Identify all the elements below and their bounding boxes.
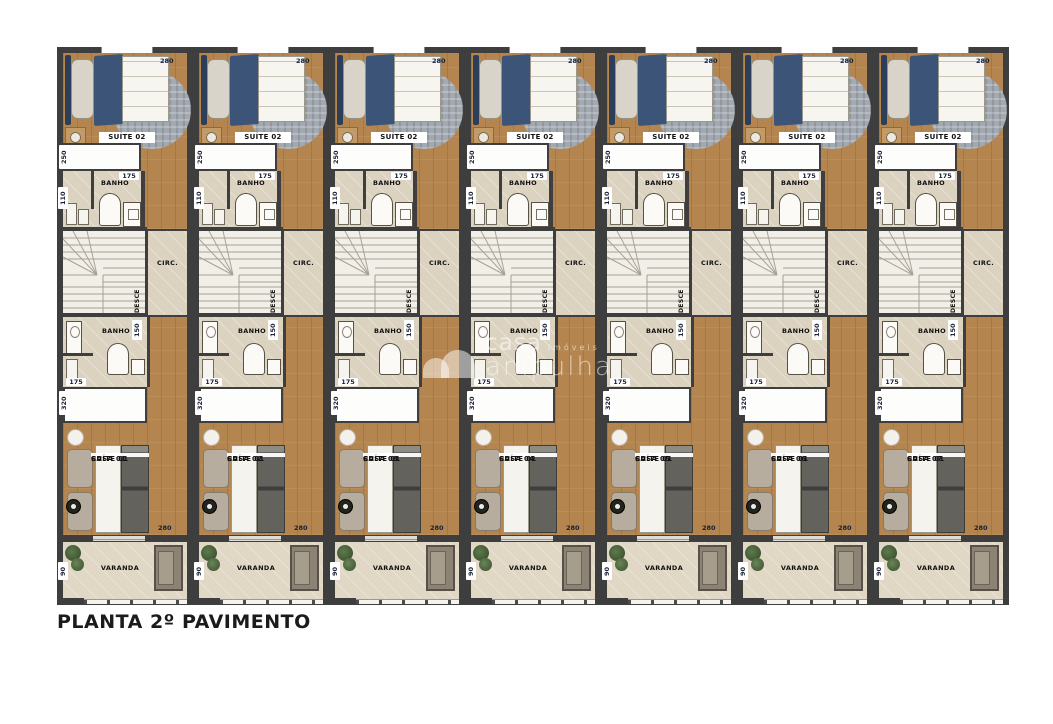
toilet bbox=[507, 193, 529, 226]
ottoman bbox=[203, 429, 220, 446]
interior-wall bbox=[419, 317, 422, 387]
bathroom1-fixture bbox=[350, 209, 361, 225]
interior-wall bbox=[277, 171, 281, 229]
dimension-lower-closet: 320 bbox=[331, 391, 341, 415]
page-title: PLANTA 2º PAVIMENTO bbox=[57, 611, 311, 633]
floor-lamp bbox=[882, 499, 897, 514]
varanda-label: VARANDA bbox=[91, 564, 149, 572]
varanda-railing bbox=[84, 599, 187, 604]
upper-closet bbox=[607, 143, 685, 171]
unit-room-label: CASA 04 SUÍTE 01 bbox=[499, 453, 557, 457]
dimension-suite1-width: 280 bbox=[293, 524, 309, 532]
vanity-sink bbox=[474, 321, 490, 355]
potted-plant bbox=[751, 558, 764, 571]
small-sink bbox=[675, 359, 689, 375]
dimension-bathroom2-depth: 150 bbox=[812, 320, 822, 340]
bed-mattress bbox=[802, 56, 849, 122]
ottoman bbox=[475, 429, 492, 446]
toilet bbox=[243, 343, 265, 375]
dimension-suite1-width: 280 bbox=[973, 524, 989, 532]
dimension-bathroom1-depth: 110 bbox=[874, 187, 884, 209]
bed-mattress bbox=[122, 56, 169, 122]
dimension-bathroom1-depth: 110 bbox=[330, 187, 340, 209]
dimension-upper-closet: 250 bbox=[875, 145, 885, 169]
toilet bbox=[643, 193, 665, 226]
dimension-varanda-depth: 90 bbox=[330, 562, 340, 580]
bathroom2-divider-wall bbox=[879, 353, 909, 356]
sink-counter bbox=[259, 202, 277, 227]
table-lamp bbox=[478, 132, 489, 143]
bathroom1-label: BANHO bbox=[635, 179, 683, 187]
lower-closet bbox=[199, 387, 283, 423]
dimension-bathroom2-width: 175 bbox=[746, 378, 766, 386]
sink-counter bbox=[531, 202, 549, 227]
dimension-bathroom2-width: 175 bbox=[202, 378, 222, 386]
bed-pillow bbox=[71, 59, 94, 119]
suite1-room-label: SUÍTE 01 bbox=[499, 455, 536, 464]
corner-wall bbox=[57, 598, 84, 605]
bed-mattress bbox=[938, 56, 985, 122]
dimension-suite2-width: 280 bbox=[159, 57, 175, 65]
townhouse-unit: SUÍTE 02 280 250 BANHO 175 110 bbox=[873, 47, 1009, 605]
stairs-down-label: DESCE bbox=[541, 273, 551, 313]
upper-closet bbox=[63, 143, 141, 171]
dimension-bathroom2-width: 175 bbox=[66, 378, 86, 386]
lower-closet bbox=[743, 387, 827, 423]
bathroom2-divider-wall bbox=[471, 353, 501, 356]
dimension-suite1-width: 280 bbox=[701, 524, 717, 532]
toilet bbox=[651, 343, 673, 375]
dimension-suite2-width: 280 bbox=[295, 57, 311, 65]
small-sink bbox=[539, 359, 553, 375]
townhouse-unit: SUÍTE 02 280 250 BANHO 175 110 bbox=[465, 47, 601, 605]
varanda-label: VARANDA bbox=[907, 564, 965, 572]
interior-wall bbox=[963, 317, 966, 387]
potted-plant bbox=[615, 558, 628, 571]
bed-pillow bbox=[611, 449, 637, 488]
bathroom1-divider-wall bbox=[907, 171, 910, 209]
varanda-sofa bbox=[290, 545, 319, 591]
circulation-floor bbox=[284, 231, 323, 315]
circulation-floor bbox=[556, 231, 595, 315]
corner-wall bbox=[193, 598, 220, 605]
potted-plant bbox=[71, 558, 84, 571]
sink-counter bbox=[803, 202, 821, 227]
bathroom1-divider-wall bbox=[227, 171, 230, 209]
bathroom1-fixture bbox=[486, 209, 497, 225]
varanda-sofa bbox=[154, 545, 183, 591]
dimension-suite2-width: 280 bbox=[703, 57, 719, 65]
interior-wall bbox=[957, 171, 961, 229]
potted-plant bbox=[207, 558, 220, 571]
dimension-upper-closet: 250 bbox=[331, 145, 341, 169]
upper-closet bbox=[199, 143, 277, 171]
bed-pillow bbox=[203, 449, 229, 488]
dimension-suite2-width: 280 bbox=[839, 57, 855, 65]
vanity-sink bbox=[202, 321, 218, 355]
bed-blue-blanket bbox=[774, 54, 803, 126]
suite2-room-label: SUÍTE 02 bbox=[507, 132, 563, 143]
small-sink bbox=[267, 359, 281, 375]
varanda-railing bbox=[220, 599, 323, 604]
stairs-down-label: DESCE bbox=[269, 273, 279, 313]
bathroom1-fixture bbox=[894, 209, 905, 225]
small-sink bbox=[811, 359, 825, 375]
unit-room-label: CASA 01 SUÍTE 01 bbox=[91, 453, 149, 457]
dimension-bathroom2-depth: 150 bbox=[676, 320, 686, 340]
corner-wall bbox=[737, 598, 764, 605]
interior-wall bbox=[283, 317, 286, 387]
dimension-suite1-width: 280 bbox=[157, 524, 173, 532]
bed-pillow bbox=[343, 59, 366, 119]
toilet bbox=[915, 193, 937, 226]
dimension-suite1-width: 280 bbox=[837, 524, 853, 532]
circulation-floor bbox=[964, 231, 1003, 315]
ottoman bbox=[67, 429, 84, 446]
table-lamp bbox=[206, 132, 217, 143]
unit-room-label: CASA 02 SUÍTE 01 bbox=[227, 453, 285, 457]
suite2-room-label: SUÍTE 02 bbox=[371, 132, 427, 143]
vanity-sink bbox=[338, 321, 354, 355]
small-sink bbox=[947, 359, 961, 375]
table-lamp bbox=[70, 132, 81, 143]
interior-wall bbox=[685, 171, 689, 229]
toilet bbox=[99, 193, 121, 226]
bathroom1-label: BANHO bbox=[363, 179, 411, 187]
circulation-label: CIRC. bbox=[148, 259, 187, 267]
sliding-door bbox=[773, 536, 825, 541]
potted-plant bbox=[479, 558, 492, 571]
townhouse-unit: SUÍTE 02 280 250 BANHO 175 110 bbox=[57, 47, 193, 605]
dimension-varanda-depth: 90 bbox=[194, 562, 204, 580]
varanda-sofa bbox=[970, 545, 999, 591]
table-lamp bbox=[614, 132, 625, 143]
dimension-lower-closet: 320 bbox=[739, 391, 749, 415]
townhouse-unit: SUÍTE 02 280 250 BANHO 175 110 bbox=[329, 47, 465, 605]
corner-wall bbox=[601, 598, 628, 605]
dimension-bathroom2-width: 175 bbox=[610, 378, 630, 386]
suite2-room-label: SUÍTE 02 bbox=[99, 132, 155, 143]
dimension-lower-closet: 320 bbox=[603, 391, 613, 415]
small-sink bbox=[403, 359, 417, 375]
stairs-down-label: DESCE bbox=[133, 273, 143, 313]
unit-room-label: CASA 07 SUÍTE 01 bbox=[907, 453, 965, 457]
varanda-label: VARANDA bbox=[771, 564, 829, 572]
varanda-sofa bbox=[834, 545, 863, 591]
dimension-bathroom1-width: 175 bbox=[935, 172, 955, 180]
bathroom1-divider-wall bbox=[91, 171, 94, 209]
townhouse-unit: SUÍTE 02 280 250 BANHO 175 110 bbox=[193, 47, 329, 605]
sliding-door bbox=[229, 536, 281, 541]
ottoman bbox=[883, 429, 900, 446]
dimension-suite2-width: 280 bbox=[975, 57, 991, 65]
sink-counter bbox=[939, 202, 957, 227]
dimension-bathroom1-width: 175 bbox=[799, 172, 819, 180]
ottoman bbox=[339, 429, 356, 446]
bed-pillow bbox=[339, 449, 365, 488]
dimension-lower-closet: 320 bbox=[195, 391, 205, 415]
dimension-varanda-depth: 90 bbox=[58, 562, 68, 580]
sliding-door bbox=[365, 536, 417, 541]
toilet bbox=[379, 343, 401, 375]
upper-closet bbox=[471, 143, 549, 171]
bed-pillow bbox=[479, 59, 502, 119]
sink-counter bbox=[667, 202, 685, 227]
bed-mattress bbox=[258, 56, 305, 122]
potted-plant bbox=[343, 558, 356, 571]
dimension-upper-closet: 250 bbox=[603, 145, 613, 169]
bathroom1-divider-wall bbox=[499, 171, 502, 209]
suite2-room-label: SUÍTE 02 bbox=[779, 132, 835, 143]
stairs-down-label: DESCE bbox=[949, 273, 959, 313]
suite1-room-label: SUÍTE 01 bbox=[91, 455, 128, 464]
interior-wall bbox=[827, 317, 830, 387]
unit-room-label: CASA 03 SUÍTE 01 bbox=[363, 453, 421, 457]
suite1-room-label: SUÍTE 01 bbox=[635, 455, 672, 464]
varanda-sofa bbox=[426, 545, 455, 591]
lower-closet bbox=[471, 387, 555, 423]
ottoman bbox=[747, 429, 764, 446]
vanity-sink bbox=[610, 321, 626, 355]
interior-wall bbox=[141, 171, 145, 229]
townhouse-unit: SUÍTE 02 280 250 BANHO 175 110 bbox=[601, 47, 737, 605]
interior-wall bbox=[413, 171, 417, 229]
dimension-bathroom1-depth: 110 bbox=[738, 187, 748, 209]
toilet bbox=[923, 343, 945, 375]
dimension-upper-closet: 250 bbox=[467, 145, 477, 169]
vanity-sink bbox=[66, 321, 82, 355]
dimension-bathroom1-width: 175 bbox=[527, 172, 547, 180]
bathroom2-divider-wall bbox=[63, 353, 93, 356]
floor-plan-page: SUÍTE 02 280 250 BANHO 175 110 bbox=[0, 0, 1053, 724]
floor-lamp bbox=[202, 499, 217, 514]
bathroom1-fixture bbox=[78, 209, 89, 225]
vanity-sink bbox=[882, 321, 898, 355]
bed-blue-blanket bbox=[366, 54, 395, 126]
varanda-railing bbox=[492, 599, 595, 604]
dimension-upper-closet: 250 bbox=[195, 145, 205, 169]
varanda-railing bbox=[356, 599, 459, 604]
dimension-bathroom1-depth: 110 bbox=[194, 187, 204, 209]
bed-pillow bbox=[751, 59, 774, 119]
bathroom2-divider-wall bbox=[607, 353, 637, 356]
toilet bbox=[371, 193, 393, 226]
bathroom1-label: BANHO bbox=[91, 179, 139, 187]
bathroom1-label: BANHO bbox=[227, 179, 275, 187]
toilet bbox=[779, 193, 801, 226]
dimension-varanda-depth: 90 bbox=[466, 562, 476, 580]
vanity-sink bbox=[746, 321, 762, 355]
unit-room-label: CASA 06 SUÍTE 01 bbox=[771, 453, 829, 457]
dimension-suite2-width: 280 bbox=[431, 57, 447, 65]
suite1-room-label: SUÍTE 01 bbox=[363, 455, 400, 464]
bathroom1-fixture bbox=[622, 209, 633, 225]
dimension-bathroom1-depth: 110 bbox=[58, 187, 68, 209]
dimension-bathroom2-depth: 150 bbox=[948, 320, 958, 340]
floor-lamp bbox=[474, 499, 489, 514]
toilet bbox=[107, 343, 129, 375]
sink-counter bbox=[123, 202, 141, 227]
potted-plant bbox=[887, 558, 900, 571]
dimension-lower-closet: 320 bbox=[59, 391, 69, 415]
dimension-lower-closet: 320 bbox=[467, 391, 477, 415]
bathroom1-divider-wall bbox=[771, 171, 774, 209]
lower-closet bbox=[63, 387, 147, 423]
bed-blue-blanket bbox=[94, 54, 123, 126]
dimension-bathroom2-depth: 150 bbox=[268, 320, 278, 340]
bed-pillow bbox=[67, 449, 93, 488]
interior-wall bbox=[549, 171, 553, 229]
unit-room-label: CASA 05 SUÍTE 01 bbox=[635, 453, 693, 457]
table-lamp bbox=[342, 132, 353, 143]
sliding-door bbox=[909, 536, 961, 541]
bed-mattress bbox=[666, 56, 713, 122]
varanda-label: VARANDA bbox=[635, 564, 693, 572]
bed-pillow bbox=[883, 449, 909, 488]
bed-blue-blanket bbox=[638, 54, 667, 126]
lower-closet bbox=[879, 387, 963, 423]
bed-pillow bbox=[887, 59, 910, 119]
dimension-suite2-width: 280 bbox=[567, 57, 583, 65]
interior-wall bbox=[691, 317, 694, 387]
bed-blue-blanket bbox=[910, 54, 939, 126]
floor-lamp bbox=[746, 499, 761, 514]
varanda-sofa bbox=[698, 545, 727, 591]
circulation-label: CIRC. bbox=[828, 259, 867, 267]
dimension-bathroom2-depth: 150 bbox=[540, 320, 550, 340]
sink-counter bbox=[395, 202, 413, 227]
circulation-floor bbox=[420, 231, 459, 315]
suite2-room-label: SUÍTE 02 bbox=[915, 132, 971, 143]
bathroom1-divider-wall bbox=[363, 171, 366, 209]
bed-pillow bbox=[207, 59, 230, 119]
varanda-label: VARANDA bbox=[363, 564, 421, 572]
toilet bbox=[787, 343, 809, 375]
units-row: SUÍTE 02 280 250 BANHO 175 110 bbox=[57, 47, 1009, 605]
lower-closet bbox=[335, 387, 419, 423]
circulation-floor bbox=[828, 231, 867, 315]
interior-wall bbox=[555, 317, 558, 387]
sliding-door bbox=[501, 536, 553, 541]
upper-closet bbox=[335, 143, 413, 171]
suite2-room-label: SUÍTE 02 bbox=[235, 132, 291, 143]
varanda-label: VARANDA bbox=[227, 564, 285, 572]
dimension-bathroom2-depth: 150 bbox=[404, 320, 414, 340]
bed-blue-blanket bbox=[502, 54, 531, 126]
dimension-bathroom1-width: 175 bbox=[391, 172, 411, 180]
small-sink bbox=[131, 359, 145, 375]
bathroom1-label: BANHO bbox=[907, 179, 955, 187]
floor-lamp bbox=[610, 499, 625, 514]
bathroom1-fixture bbox=[214, 209, 225, 225]
dimension-suite1-width: 280 bbox=[429, 524, 445, 532]
dimension-varanda-depth: 90 bbox=[738, 562, 748, 580]
lower-closet bbox=[607, 387, 691, 423]
bed-blue-blanket bbox=[230, 54, 259, 126]
toilet bbox=[515, 343, 537, 375]
corner-wall bbox=[873, 598, 900, 605]
upper-closet bbox=[879, 143, 957, 171]
bathroom1-divider-wall bbox=[635, 171, 638, 209]
circulation-label: CIRC. bbox=[964, 259, 1003, 267]
varanda-railing bbox=[764, 599, 867, 604]
bed-pillow bbox=[475, 449, 501, 488]
interior-wall bbox=[147, 317, 150, 387]
dimension-bathroom2-width: 175 bbox=[474, 378, 494, 386]
dimension-bathroom2-width: 175 bbox=[882, 378, 902, 386]
bed-mattress bbox=[530, 56, 577, 122]
interior-wall bbox=[821, 171, 825, 229]
toilet bbox=[235, 193, 257, 226]
dimension-varanda-depth: 90 bbox=[874, 562, 884, 580]
sliding-door bbox=[637, 536, 689, 541]
varanda-railing bbox=[900, 599, 1003, 604]
stairs-down-label: DESCE bbox=[405, 273, 415, 313]
suite1-room-label: SUÍTE 01 bbox=[227, 455, 264, 464]
table-lamp bbox=[886, 132, 897, 143]
bathroom2-divider-wall bbox=[743, 353, 773, 356]
stairs-down-label: DESCE bbox=[813, 273, 823, 313]
table-lamp bbox=[750, 132, 761, 143]
bed-mattress bbox=[394, 56, 441, 122]
dimension-bathroom1-width: 175 bbox=[255, 172, 275, 180]
varanda-railing bbox=[628, 599, 731, 604]
ottoman bbox=[611, 429, 628, 446]
dimension-bathroom1-depth: 110 bbox=[602, 187, 612, 209]
floor-lamp bbox=[66, 499, 81, 514]
varanda-sofa bbox=[562, 545, 591, 591]
dimension-suite1-width: 280 bbox=[565, 524, 581, 532]
circulation-label: CIRC. bbox=[692, 259, 731, 267]
circulation-label: CIRC. bbox=[420, 259, 459, 267]
upper-closet bbox=[743, 143, 821, 171]
sliding-door bbox=[93, 536, 145, 541]
dimension-bathroom1-width: 175 bbox=[663, 172, 683, 180]
bathroom2-divider-wall bbox=[335, 353, 365, 356]
townhouse-unit: SUÍTE 02 280 250 BANHO 175 110 bbox=[737, 47, 873, 605]
circulation-label: CIRC. bbox=[284, 259, 323, 267]
suite1-room-label: SUÍTE 01 bbox=[771, 455, 808, 464]
corner-wall bbox=[465, 598, 492, 605]
dimension-varanda-depth: 90 bbox=[602, 562, 612, 580]
suite1-room-label: SUÍTE 01 bbox=[907, 455, 944, 464]
suite2-room-label: SUÍTE 02 bbox=[643, 132, 699, 143]
dimension-bathroom2-depth: 150 bbox=[132, 320, 142, 340]
bed-pillow bbox=[747, 449, 773, 488]
corner-wall bbox=[329, 598, 356, 605]
stairs-down-label: DESCE bbox=[677, 273, 687, 313]
circulation-label: CIRC. bbox=[556, 259, 595, 267]
circulation-floor bbox=[692, 231, 731, 315]
dimension-bathroom1-depth: 110 bbox=[466, 187, 476, 209]
dimension-bathroom2-width: 175 bbox=[338, 378, 358, 386]
dimension-bathroom1-width: 175 bbox=[119, 172, 139, 180]
bathroom1-label: BANHO bbox=[771, 179, 819, 187]
circulation-floor bbox=[148, 231, 187, 315]
dimension-lower-closet: 320 bbox=[875, 391, 885, 415]
dimension-upper-closet: 250 bbox=[59, 145, 69, 169]
bed-pillow bbox=[615, 59, 638, 119]
floor-lamp bbox=[338, 499, 353, 514]
bathroom1-fixture bbox=[758, 209, 769, 225]
varanda-label: VARANDA bbox=[499, 564, 557, 572]
bathroom2-divider-wall bbox=[199, 353, 229, 356]
bathroom1-label: BANHO bbox=[499, 179, 547, 187]
dimension-upper-closet: 250 bbox=[739, 145, 749, 169]
